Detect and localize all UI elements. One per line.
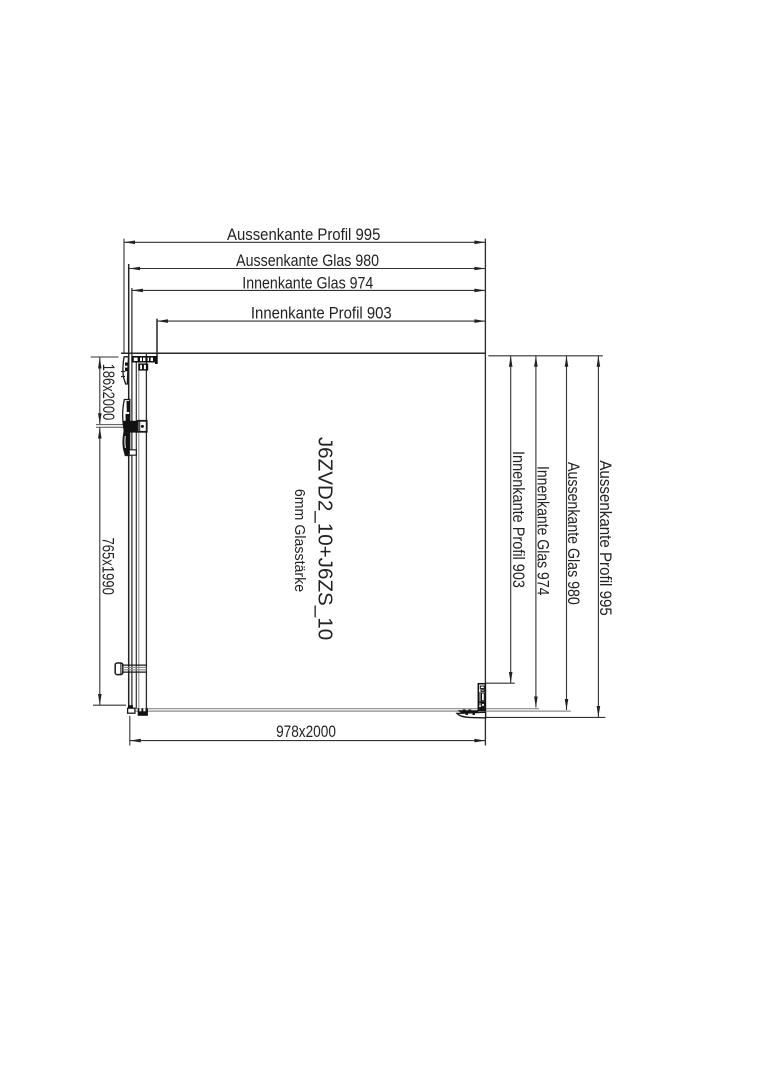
svg-text:Aussenkante Glas 980: Aussenkante Glas 980 <box>236 252 379 270</box>
svg-text:Aussenkante Profil 995: Aussenkante Profil 995 <box>227 226 380 244</box>
svg-text:Aussenkante Glas 980: Aussenkante Glas 980 <box>564 462 582 605</box>
svg-text:186x2000: 186x2000 <box>99 364 117 421</box>
svg-text:J6ZVD2_10+J6ZS_10: J6ZVD2_10+J6ZS_10 <box>314 437 336 640</box>
svg-text:978x2000: 978x2000 <box>276 723 336 741</box>
svg-text:Aussenkante Profil 995: Aussenkante Profil 995 <box>596 460 614 616</box>
svg-text:765x1990: 765x1990 <box>99 537 117 595</box>
svg-text:6mm Glasstärke: 6mm Glasstärke <box>291 489 308 592</box>
svg-text:Innenkante Glas 974: Innenkante Glas 974 <box>242 274 373 292</box>
svg-text:Innenkante Profil 903: Innenkante Profil 903 <box>509 451 527 588</box>
svg-text:Innenkante Profil 903: Innenkante Profil 903 <box>251 305 392 323</box>
svg-text:Innenkante Glas 974: Innenkante Glas 974 <box>534 466 552 596</box>
